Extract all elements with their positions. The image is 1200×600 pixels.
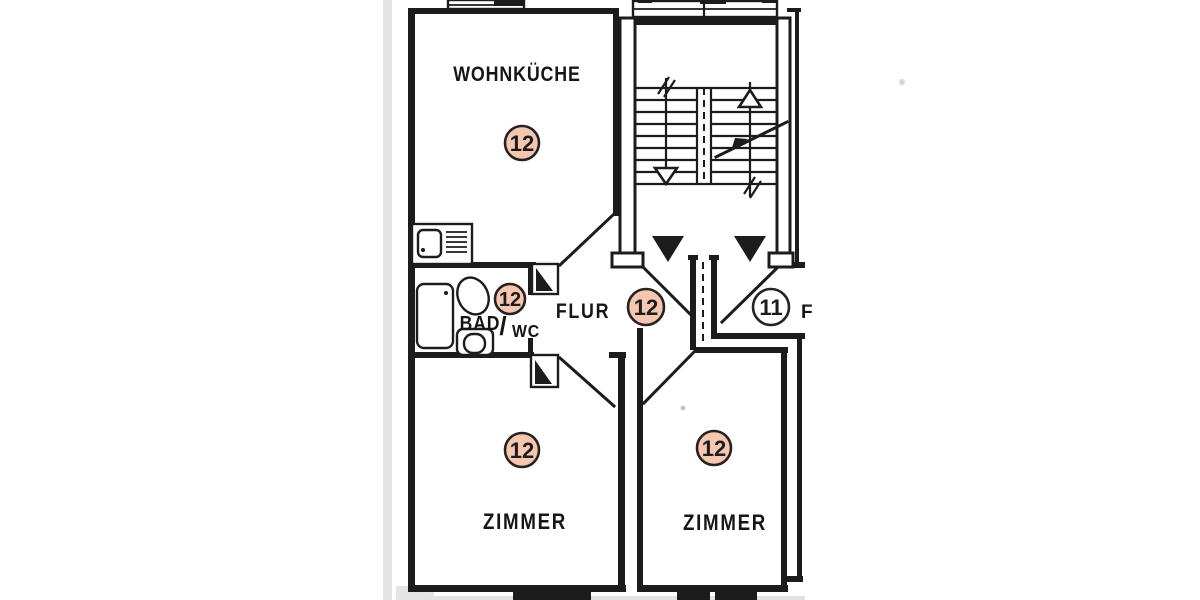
door-jamb-wohnkueche <box>532 264 558 294</box>
svg-text:/: / <box>499 311 506 341</box>
wall-center-stub <box>688 255 719 350</box>
stair-stringer <box>697 88 711 184</box>
unit-badge-wohnkueche: 12 <box>505 126 539 160</box>
wall-neighbor-flur-bottom <box>711 333 805 339</box>
room-zimmer-left <box>408 352 626 600</box>
wall-outer-right-foot <box>782 576 803 582</box>
badge-number: 12 <box>634 295 658 320</box>
svg-text:F: F <box>801 302 813 323</box>
label-wc: WC <box>512 321 540 341</box>
svg-text:WC: WC <box>512 321 540 341</box>
wall-outer-right <box>797 333 802 580</box>
wall-stairwell-top <box>619 18 791 25</box>
label-bad-wc-slash: / <box>499 311 506 341</box>
wall-outer-top-tick <box>787 8 801 12</box>
badge-number: 11 <box>759 295 782 320</box>
wall-outer-top-right <box>795 10 799 268</box>
break-mark-bottom <box>744 177 761 198</box>
entrance-arrow-unit11-icon <box>734 236 766 262</box>
window-zimmer-right <box>677 589 757 600</box>
unit-badge-flur: 12 <box>628 289 664 325</box>
door-swing-zimmer-left <box>560 358 614 406</box>
wall-zimmer-right-right <box>781 347 787 592</box>
staircase-symbol <box>635 77 787 198</box>
door-swing-zimmer-right <box>644 351 695 403</box>
wall-stairwell-left <box>620 18 635 255</box>
wall-zimmer-right-bottom <box>637 585 788 592</box>
label-zimmer-left: ZIMMER <box>483 511 567 535</box>
unit-badge-zimmer-left: 12 <box>505 433 539 467</box>
kitchen-sink-symbol <box>412 224 472 264</box>
badge-number: 12 <box>702 436 726 461</box>
badge-number: 12 <box>510 438 534 463</box>
window-stairwell <box>633 0 777 17</box>
svg-text:ZIMMER: ZIMMER <box>483 511 567 535</box>
svg-text:FLUR: FLUR <box>556 300 610 324</box>
wall-landing-left-flare <box>612 253 643 267</box>
wall-zimmer-left-right <box>618 352 625 592</box>
wall-left-exterior <box>408 8 415 592</box>
svg-text:WOHNKÜCHE: WOHNKÜCHE <box>453 62 581 87</box>
window-zimmer-left <box>513 589 591 600</box>
floor-plan-scan: 12 12 12 11 12 12 WOHNKÜCHE BAD / WC FLU… <box>0 0 1200 600</box>
wall-wohnkueche-right <box>613 8 619 216</box>
floor-plan-drawing: 12 12 12 11 12 12 WOHNKÜCHE BAD / WC FLU… <box>0 0 1200 600</box>
badge-number: 12 <box>499 289 521 311</box>
door-swing-wohnkueche <box>560 214 614 265</box>
door-jamb-zimmer-left <box>531 355 558 387</box>
unit-badge-bad: 12 <box>495 284 525 314</box>
unit-badge-zimmer-right: 12 <box>697 431 731 465</box>
wall-stairwell-right <box>777 18 790 255</box>
badge-number: 12 <box>510 131 534 156</box>
wall-landing-right-flare <box>769 253 793 267</box>
window-wohnkueche-top <box>448 0 524 9</box>
label-neighbor-partial: F <box>801 302 813 323</box>
svg-text:BAD: BAD <box>460 312 501 334</box>
label-zimmer-right: ZIMMER <box>683 512 767 536</box>
wall-zimmer-right-top <box>695 347 788 353</box>
unit-badge-neighbor: 11 <box>753 289 789 325</box>
stair-up-arrow-icon <box>739 90 761 107</box>
label-wohnkueche: WOHNKÜCHE <box>453 62 581 87</box>
stair-down-arrow-icon <box>655 168 677 184</box>
bathtub-symbol <box>417 284 453 348</box>
entrance-arrow-unit12-icon <box>652 236 684 262</box>
wall-zimmer-right-left <box>637 328 643 592</box>
label-bad: BAD <box>460 312 501 334</box>
svg-text:ZIMMER: ZIMMER <box>683 512 767 536</box>
label-flur: FLUR <box>556 300 610 324</box>
